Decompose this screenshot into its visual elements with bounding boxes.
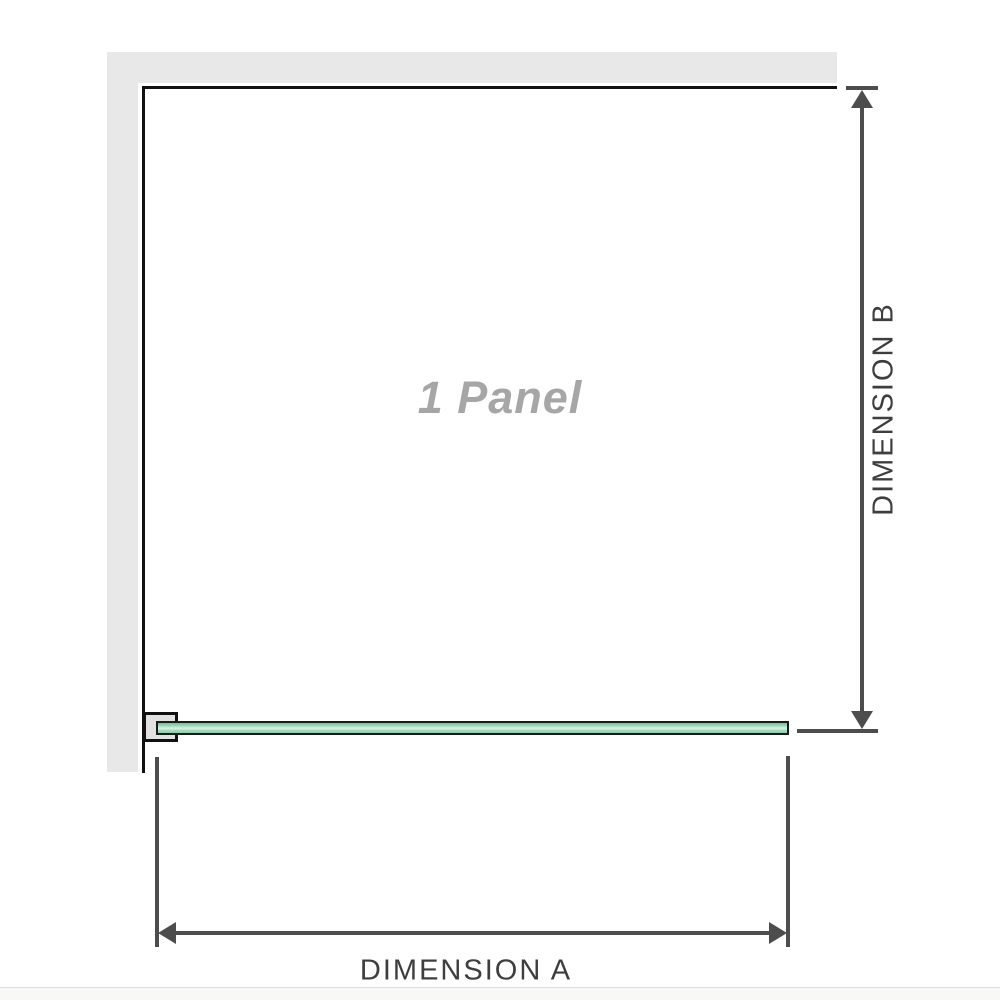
panel-dimension-diagram: 1 Panel DIMENSION B DIMENSION A <box>0 0 1000 1000</box>
arrow-down-icon <box>851 711 873 729</box>
dimension-a-label: DIMENSION A <box>360 955 572 988</box>
bottom-divider <box>0 987 1000 1000</box>
dimension-b-bottom-tick <box>797 729 878 733</box>
dimension-b-line <box>860 100 864 718</box>
enclosure-top-edge <box>142 86 837 89</box>
panel-count-label: 1 Panel <box>418 372 583 424</box>
enclosure-left-edge <box>142 86 145 773</box>
wall-top <box>108 52 837 83</box>
dimension-a-right-extension <box>786 756 790 947</box>
arrow-up-icon <box>851 90 873 108</box>
dimension-a-left-extension <box>155 757 159 947</box>
dimension-a-line <box>172 931 772 935</box>
wall-left <box>107 52 138 772</box>
arrow-left-icon <box>158 922 176 944</box>
glass-panel <box>156 721 789 735</box>
arrow-right-icon <box>769 922 787 944</box>
dimension-b-label: DIMENSION B <box>868 302 901 516</box>
